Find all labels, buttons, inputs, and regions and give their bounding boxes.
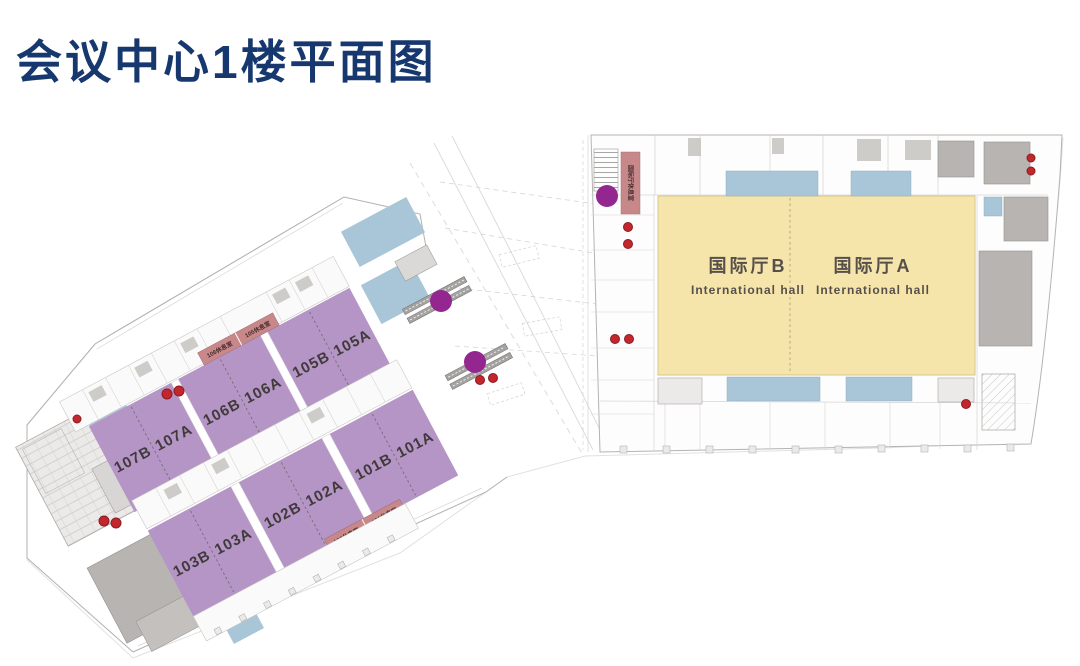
staircase (594, 149, 618, 191)
service-room-east-3 (982, 374, 1015, 430)
right-wing: 国际厅休息室 国际厅B International hall 国际厅A Inte… (591, 135, 1062, 453)
service-room-ne-1 (938, 141, 974, 177)
escalator-markers (430, 185, 618, 373)
hall-a-name: 国际厅A (834, 256, 913, 276)
hall-b-subtitle: International hall (691, 283, 805, 297)
floor-plan: 107B 107A 106B 106A 105B 105A 106休息室 105… (0, 0, 1080, 666)
escalator-marker-hall (596, 185, 618, 207)
left-wing: 107B 107A 106B 106A 105B 105A 106休息室 105… (16, 197, 513, 660)
service-room-south-2 (938, 378, 974, 402)
hall-a-subtitle: International hall (816, 283, 930, 297)
page: { "title": "会议中心1楼平面图", "plan": { "halls… (0, 0, 1080, 666)
escalator-marker-lower (464, 351, 486, 373)
escalator-marker-upper (430, 290, 452, 312)
service-room-south-1 (658, 378, 702, 404)
service-room-east-1 (1004, 197, 1048, 241)
hall-b-name: 国际厅B (709, 256, 788, 276)
service-room-ne-2 (984, 142, 1030, 184)
service-room-east-2 (979, 251, 1032, 346)
hall-lounge-label: 国际厅休息室 (627, 165, 635, 201)
